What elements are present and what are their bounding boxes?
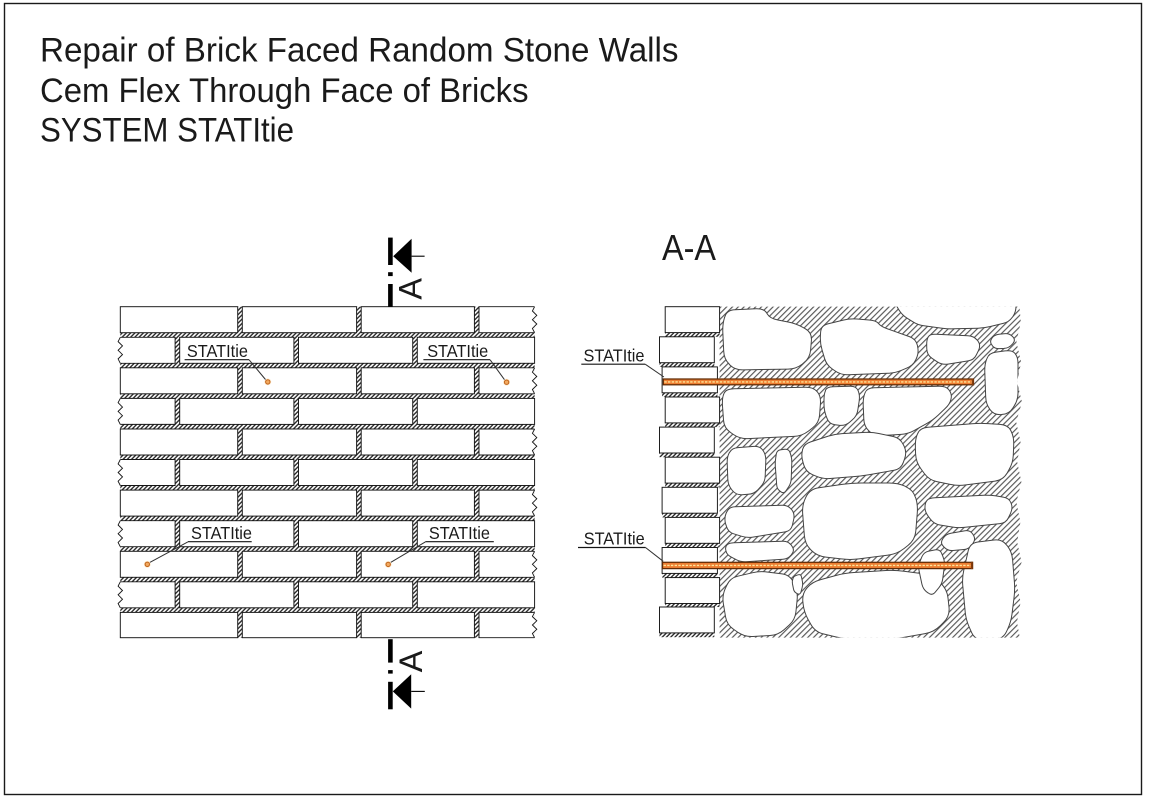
svg-text:A-A: A-A: [662, 227, 716, 268]
svg-text:A: A: [393, 650, 429, 672]
svg-text:A: A: [392, 278, 428, 300]
svg-text:STATItie: STATItie: [191, 523, 252, 543]
svg-text:SYSTEM STATItie: SYSTEM STATItie: [40, 111, 294, 149]
svg-text:Repair of Brick Faced Random S: Repair of Brick Faced Random Stone Walls: [40, 31, 679, 69]
svg-text:STATItie: STATItie: [584, 346, 645, 366]
svg-text:Cem Flex Through Face of Brick: Cem Flex Through Face of Bricks: [40, 72, 529, 110]
svg-text:STATItie: STATItie: [187, 341, 248, 361]
svg-text:STATItie: STATItie: [429, 523, 490, 543]
svg-text:STATItie: STATItie: [584, 529, 645, 549]
svg-text:STATItie: STATItie: [427, 341, 488, 361]
